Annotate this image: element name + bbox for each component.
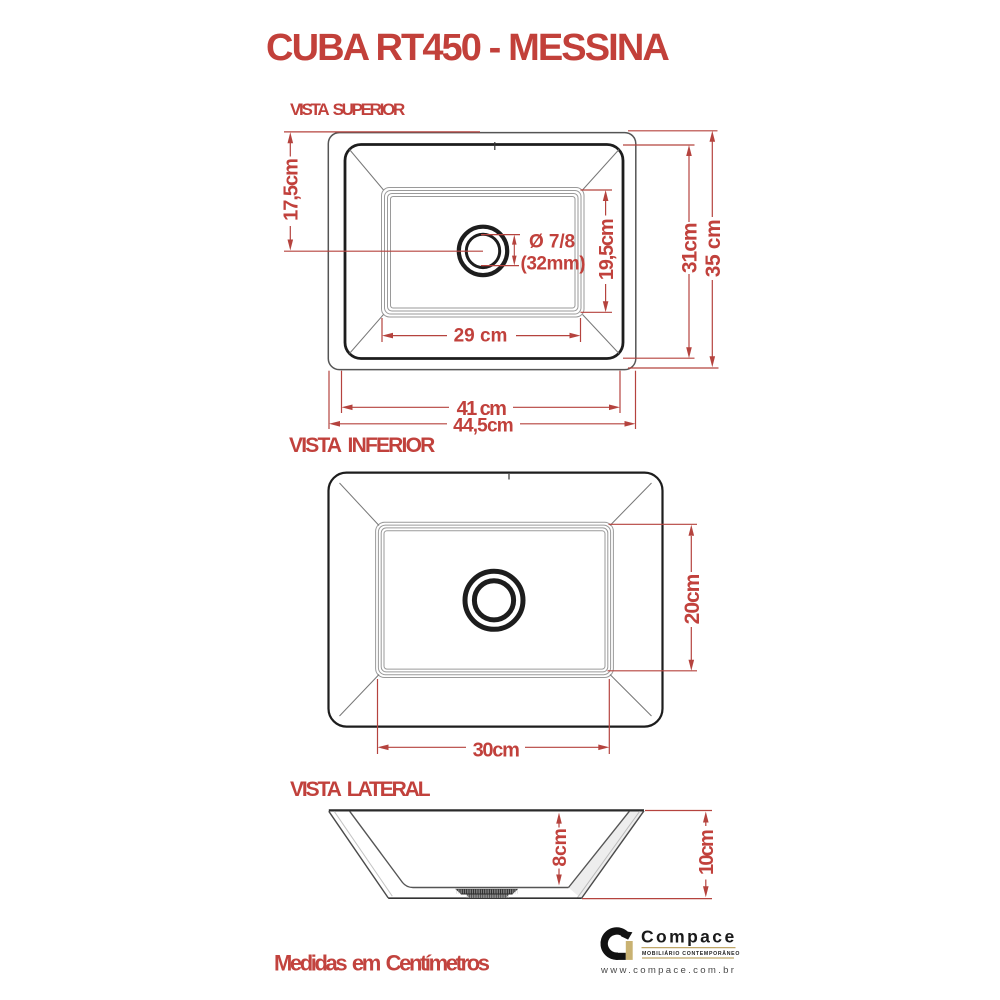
svg-text:30cm: 30cm: [473, 739, 519, 761]
svg-text:Compace: Compace: [641, 927, 737, 947]
svg-text:Ø 7/8: Ø 7/8: [529, 232, 575, 253]
svg-text:10cm: 10cm: [696, 830, 718, 875]
svg-text:MOBILIÁRIO CONTEMPORÂNEO: MOBILIÁRIO CONTEMPORÂNEO: [642, 950, 740, 957]
svg-text:31cm: 31cm: [679, 223, 702, 273]
svg-text:VISTA LATERAL: VISTA LATERAL: [290, 778, 431, 801]
svg-text:www.compace.com.br: www.compace.com.br: [600, 965, 736, 976]
svg-text:20cm: 20cm: [681, 574, 704, 624]
svg-text:35 cm: 35 cm: [702, 220, 725, 278]
svg-text:VISTA SUPERIOR: VISTA SUPERIOR: [290, 100, 405, 119]
svg-text:29 cm: 29 cm: [454, 325, 508, 346]
svg-text:Medidas em Centímetros: Medidas em Centímetros: [274, 951, 490, 976]
svg-text:(32mm): (32mm): [521, 254, 586, 275]
svg-text:CUBA RT450 - MESSINA: CUBA RT450 - MESSINA: [266, 27, 669, 69]
svg-text:8cm: 8cm: [549, 828, 571, 866]
svg-text:17,5cm: 17,5cm: [281, 159, 303, 221]
svg-text:44,5cm: 44,5cm: [453, 415, 513, 436]
svg-text:VISTA INFERIOR: VISTA INFERIOR: [289, 434, 435, 457]
svg-text:19,5cm: 19,5cm: [596, 219, 618, 280]
